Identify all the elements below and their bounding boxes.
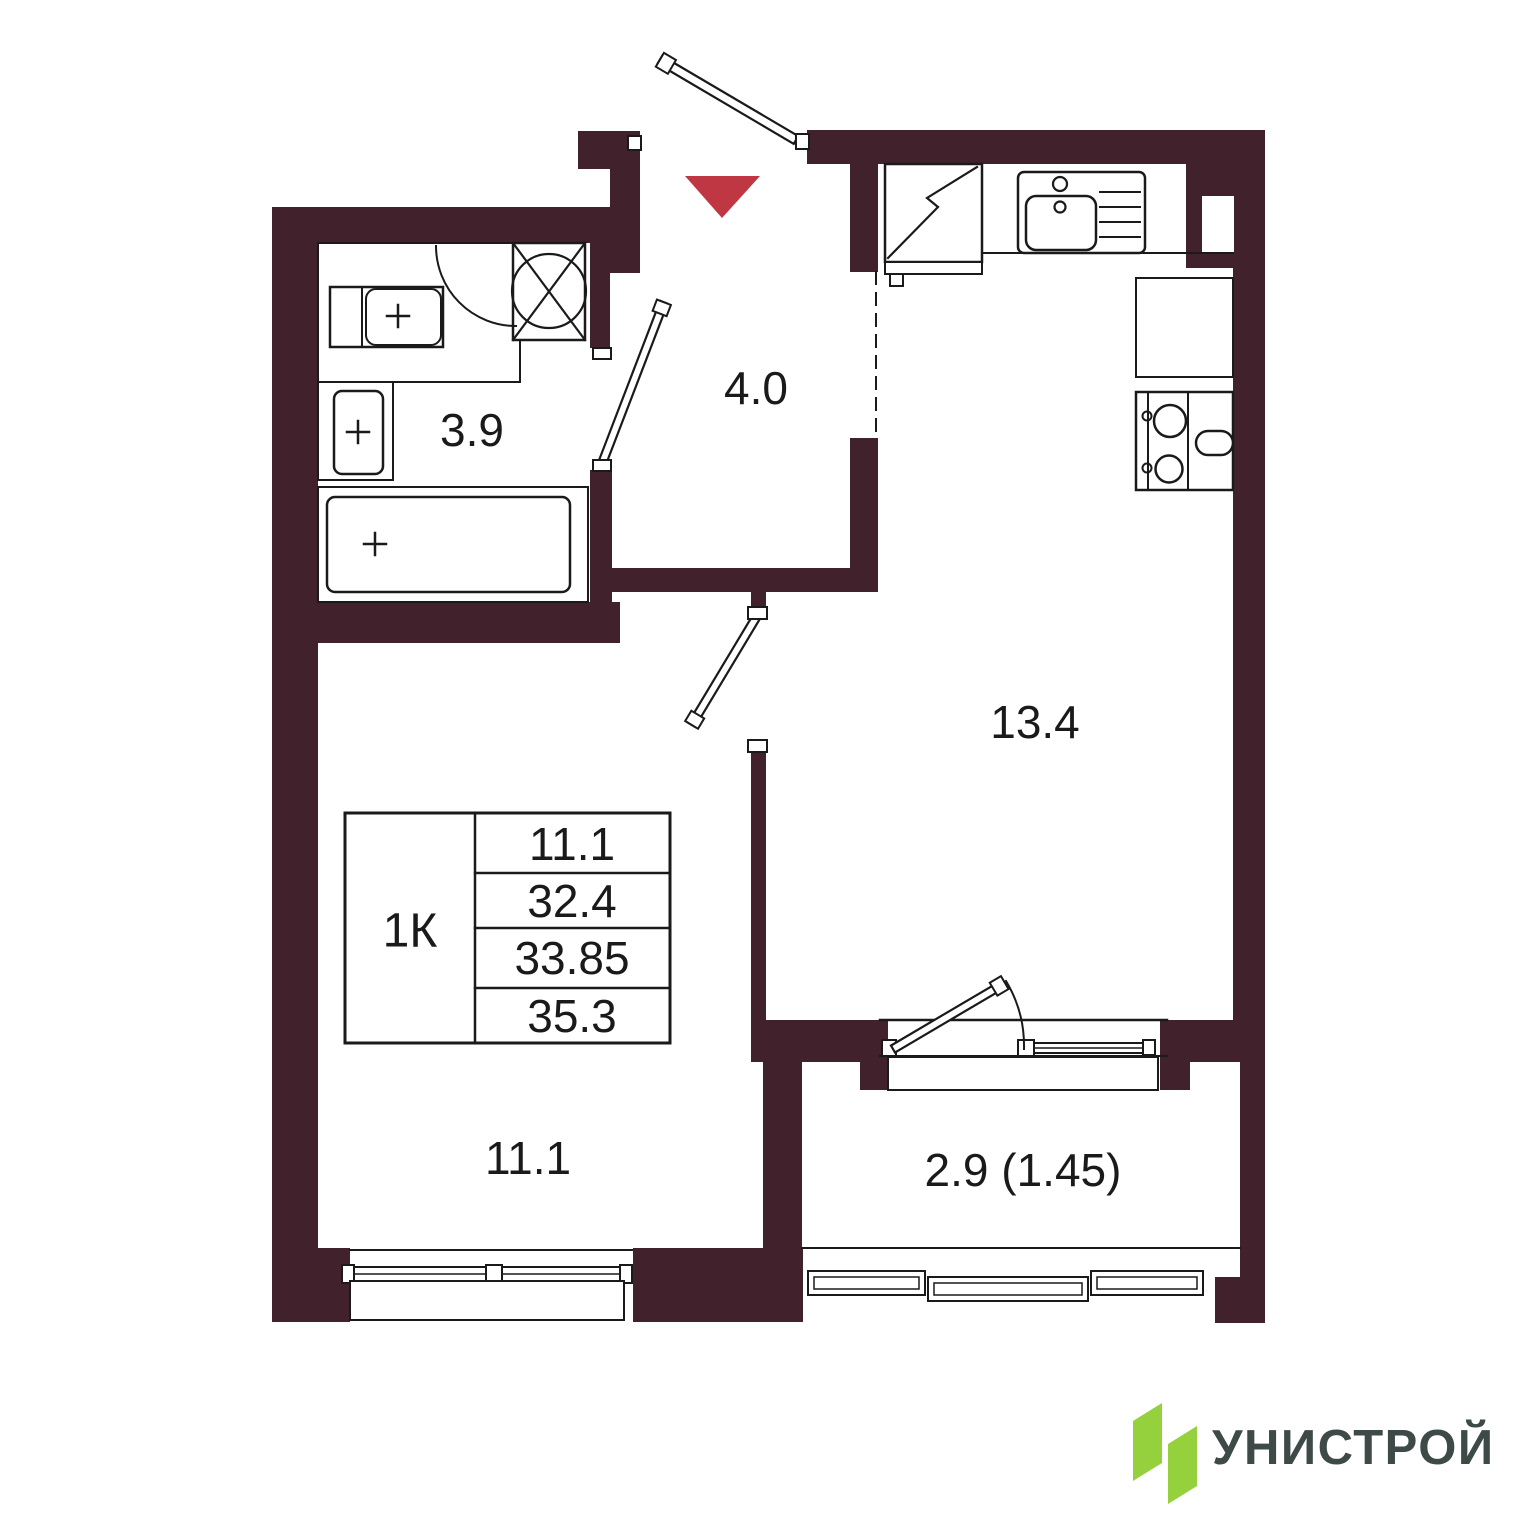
table-value-living: 32.4 [527, 875, 617, 927]
table-type-cell: 1К [383, 905, 438, 958]
washing-machine [330, 287, 443, 347]
logo: УНИСТРОЙ [1133, 1403, 1495, 1504]
balcony-sill [888, 1057, 1158, 1090]
logo-text: УНИСТРОЙ [1212, 1420, 1495, 1475]
window-sill [350, 1281, 624, 1320]
bathtub [318, 487, 588, 602]
room-label-balcony: 2.9 (1.45) [925, 1144, 1122, 1196]
bedroom-door [685, 607, 767, 752]
wall-niche [1202, 196, 1234, 252]
entrance-door [628, 53, 809, 150]
stove [1136, 392, 1233, 490]
balcony-glazing [802, 1248, 1240, 1301]
balcony-door-unit [880, 976, 1167, 1090]
entrance-direction-icon [685, 176, 760, 218]
room-label-bathroom: 3.9 [440, 404, 504, 456]
room-label-bedroom: 11.1 [485, 1132, 571, 1184]
kitchen-sink [1018, 172, 1145, 253]
window-bedroom [342, 1250, 632, 1320]
kitchen-fixtures [876, 164, 1233, 490]
logo-icon [1133, 1403, 1197, 1504]
table-value-room: 11.1 [529, 818, 615, 870]
balcony-door-arc [1006, 981, 1024, 1049]
room-label-hallway: 4.0 [724, 362, 788, 414]
floor-plan-svg: 4.0 3.9 13.4 11.1 2.9 (1.45) 1К 11.1 32.… [0, 0, 1536, 1536]
vent-shaft-icon [512, 243, 586, 340]
kitchen-counter [982, 253, 1233, 377]
washbasin [318, 382, 393, 480]
fridge [885, 164, 982, 286]
floor-plan-page: 4.0 3.9 13.4 11.1 2.9 (1.45) 1К 11.1 32.… [0, 0, 1536, 1536]
table-value-gross: 35.3 [527, 990, 617, 1042]
bathroom-door-arc [436, 246, 516, 326]
balcony-door-leaf [889, 976, 1009, 1055]
room-label-kitchen-living: 13.4 [990, 696, 1080, 748]
oven-handle [1196, 431, 1233, 455]
table-value-total: 33.85 [514, 932, 629, 984]
